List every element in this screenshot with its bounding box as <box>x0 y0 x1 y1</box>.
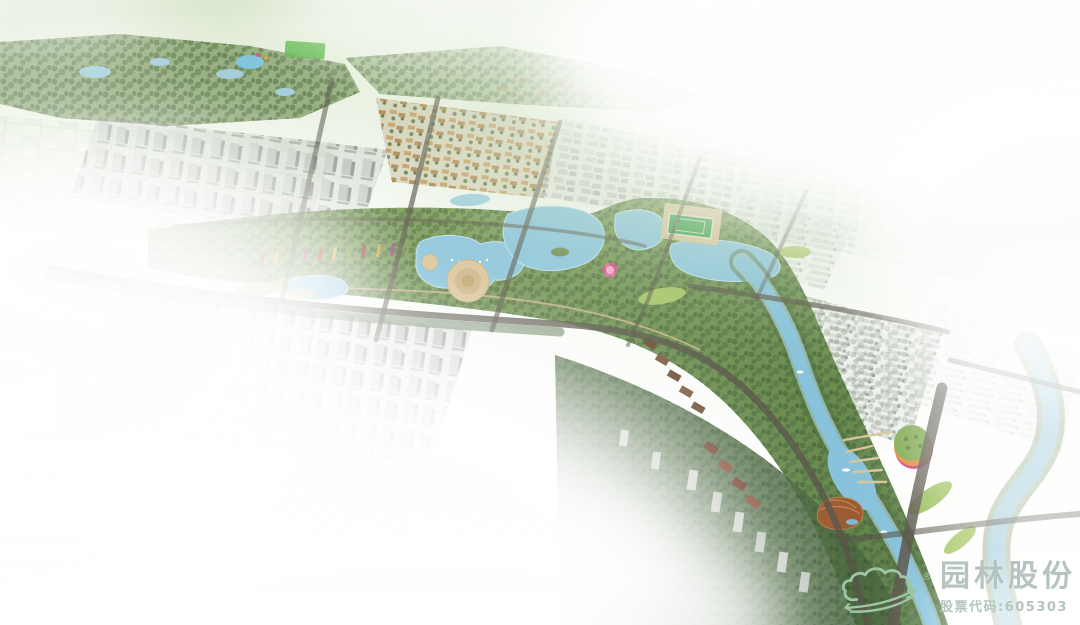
wetland-pond <box>79 66 111 78</box>
cloud-leaf-logo-icon <box>836 563 930 617</box>
theater-glass <box>846 519 858 525</box>
watermark-text: 园林股份 股票代码:605303 <box>940 562 1076 617</box>
masterplan-illustration <box>0 0 1080 625</box>
company-name: 园林股份 <box>940 562 1076 592</box>
watermark-logo: ® 园林股份 股票代码:605303 <box>836 562 1076 617</box>
sports-green <box>284 41 325 60</box>
registered-trademark: ® <box>922 572 932 583</box>
lake-island <box>551 248 569 257</box>
waterpark-pool <box>236 55 264 69</box>
aerial-rendering: ® 园林股份 股票代码:605303 <box>0 0 1080 625</box>
stock-code: 股票代码:605303 <box>940 596 1068 615</box>
